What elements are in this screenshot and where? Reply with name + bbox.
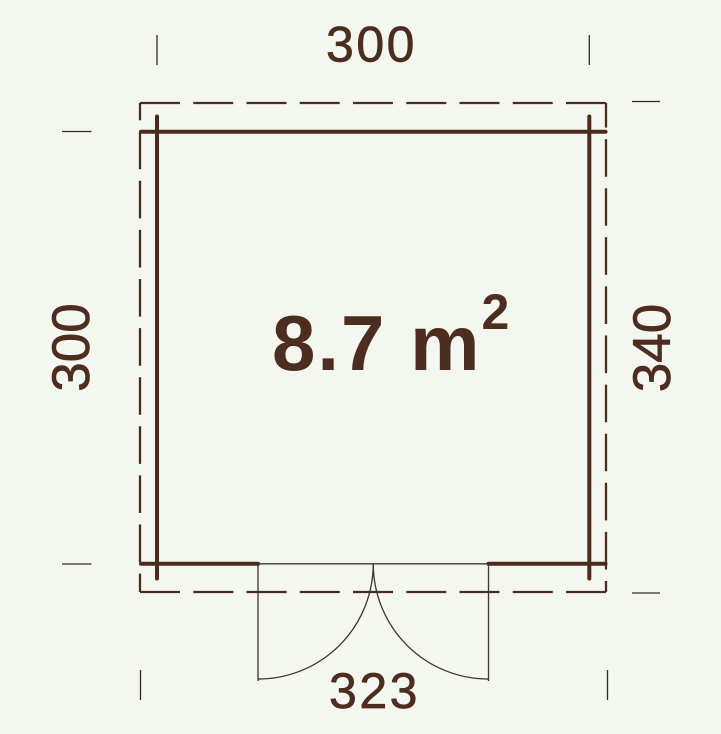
svg-text:300: 300 bbox=[42, 303, 101, 391]
svg-text:340: 340 bbox=[623, 304, 682, 392]
svg-text:323: 323 bbox=[329, 663, 420, 719]
svg-text:8.7 m2: 8.7 m2 bbox=[272, 284, 511, 387]
svg-text:300: 300 bbox=[326, 17, 417, 73]
